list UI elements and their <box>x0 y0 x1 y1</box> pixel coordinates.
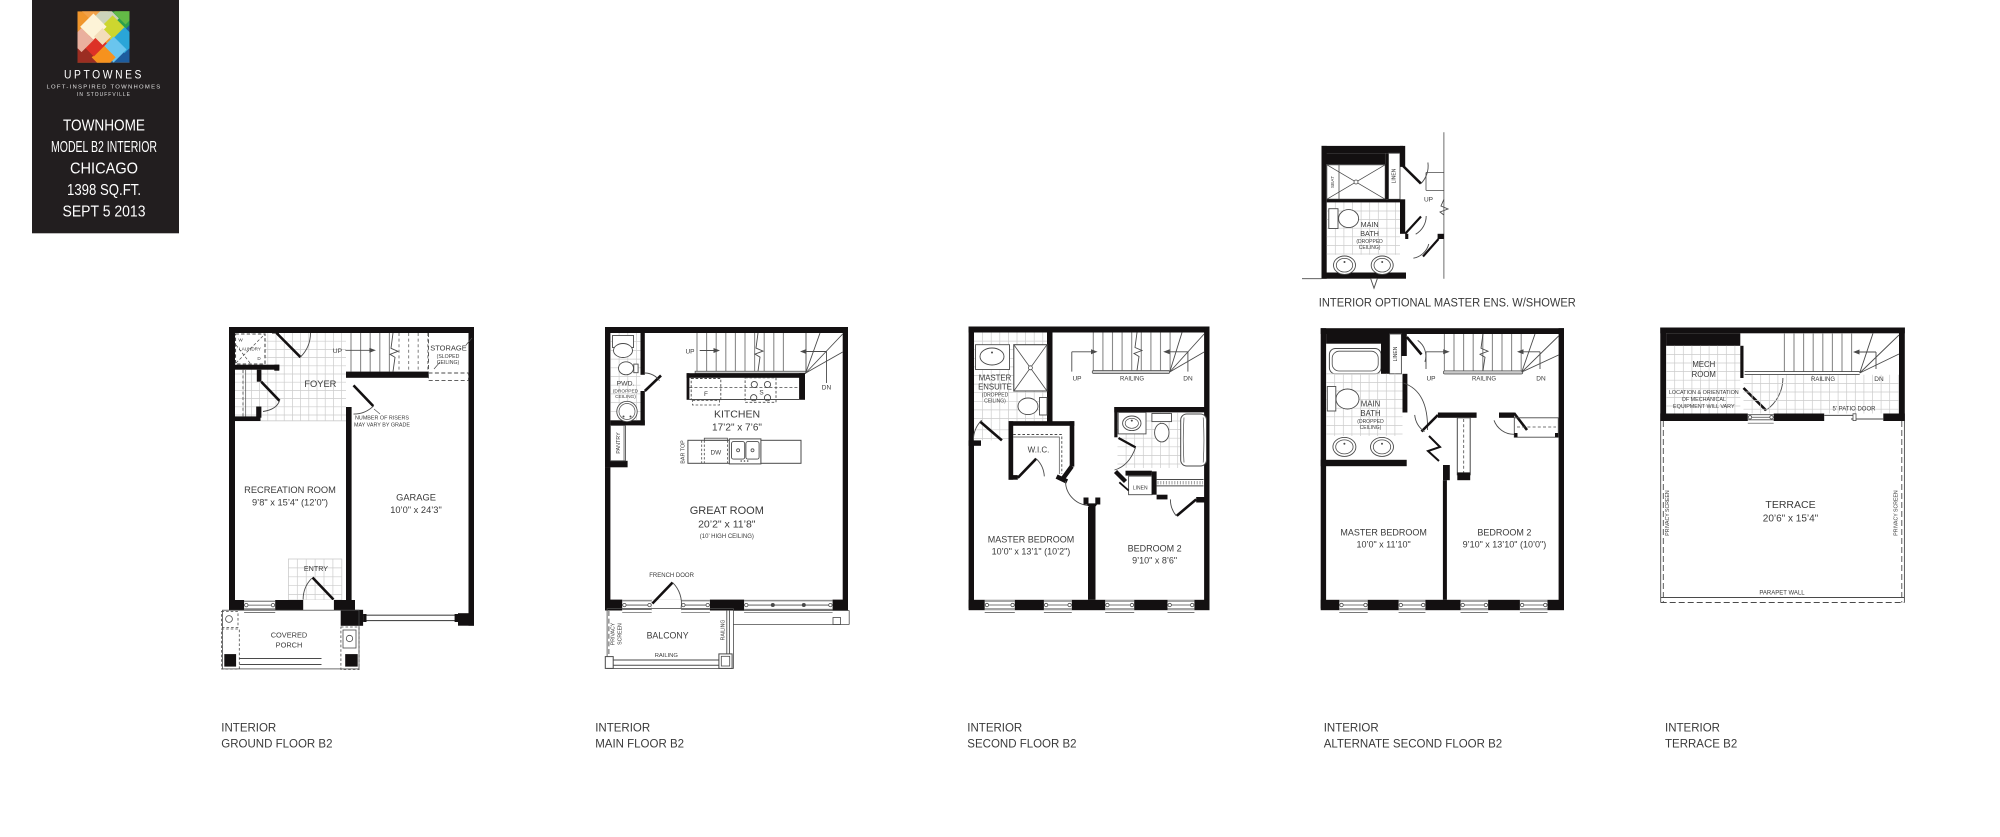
svg-text:PANTRY: PANTRY <box>616 432 622 454</box>
svg-text:GREAT ROOM: GREAT ROOM <box>690 505 764 517</box>
svg-text:PORCH: PORCH <box>276 641 303 650</box>
svg-text:20’6" x 15’4": 20’6" x 15’4" <box>1763 514 1819 525</box>
svg-text:MASTER BEDROOM: MASTER BEDROOM <box>1340 528 1427 538</box>
svg-text:INTERIOR: INTERIOR <box>1324 723 1379 735</box>
svg-text:UP: UP <box>1426 376 1435 383</box>
svg-text:MECH: MECH <box>1692 360 1715 369</box>
svg-text:W.I.C.: W.I.C. <box>1028 446 1050 455</box>
svg-text:LINEN: LINEN <box>1392 168 1398 183</box>
svg-text:UP: UP <box>685 349 694 356</box>
svg-text:UPTOWNES: UPTOWNES <box>64 68 144 82</box>
svg-text:STORAGE: STORAGE <box>430 344 467 353</box>
svg-text:PWD.: PWD. <box>617 381 635 388</box>
svg-text:5’ PATIO DOOR: 5’ PATIO DOOR <box>1833 407 1877 413</box>
svg-text:GARAGE: GARAGE <box>396 493 436 503</box>
svg-text:LINEN: LINEN <box>1133 486 1148 492</box>
svg-text:CEILING): CEILING) <box>615 394 636 400</box>
svg-text:9’10" x 8’6": 9’10" x 8’6" <box>1132 556 1177 566</box>
svg-text:NUMBER OF RISERS: NUMBER OF RISERS <box>355 416 409 422</box>
svg-text:CEILING): CEILING) <box>437 360 460 366</box>
svg-text:PRIVACY SCREEN: PRIVACY SCREEN <box>1894 490 1900 536</box>
svg-text:INTERIOR: INTERIOR <box>1665 723 1720 735</box>
svg-text:SCREEN: SCREEN <box>618 623 624 645</box>
svg-text:DW: DW <box>710 450 722 457</box>
svg-text:PRIVACY: PRIVACY <box>611 622 617 645</box>
svg-text:10’0" x 13’1" (10’2"): 10’0" x 13’1" (10’2") <box>992 547 1071 557</box>
svg-text:CEILING): CEILING) <box>984 399 1006 405</box>
svg-text:LAUNDRY: LAUNDRY <box>239 347 261 352</box>
svg-text:INTERIOR: INTERIOR <box>595 723 650 735</box>
svg-text:W: W <box>238 338 243 343</box>
svg-text:RECREATION ROOM: RECREATION ROOM <box>244 485 336 495</box>
svg-text:SEAT: SEAT <box>1330 176 1336 188</box>
svg-text:ROOM: ROOM <box>1692 370 1716 379</box>
svg-text:(10’ HIGH CEILING): (10’ HIGH CEILING) <box>700 534 754 540</box>
svg-text:BAR TOP: BAR TOP <box>681 440 687 464</box>
svg-text:DN: DN <box>1536 376 1546 383</box>
svg-text:ENTRY: ENTRY <box>304 564 328 573</box>
svg-text:S: S <box>759 390 763 397</box>
svg-text:EQUIPMENT WILL VARY: EQUIPMENT WILL VARY <box>1673 404 1735 410</box>
svg-text:10’0" x 24’3": 10’0" x 24’3" <box>390 505 442 515</box>
svg-text:TOWNHOME: TOWNHOME <box>63 117 145 134</box>
svg-text:UP: UP <box>333 348 342 355</box>
svg-text:MAIN: MAIN <box>1361 400 1381 409</box>
svg-text:BATH: BATH <box>1360 229 1379 238</box>
svg-text:PARAPET WALL: PARAPET WALL <box>1759 591 1805 597</box>
svg-text:CHICAGO: CHICAGO <box>70 160 138 177</box>
svg-text:BEDROOM 2: BEDROOM 2 <box>1477 528 1531 538</box>
svg-text:9’8" x 15’4" (12’0"): 9’8" x 15’4" (12’0") <box>252 498 328 508</box>
svg-text:SECOND FLOOR B2: SECOND FLOOR B2 <box>967 738 1076 750</box>
svg-text:CEILING): CEILING) <box>1359 245 1381 251</box>
svg-text:FRENCH DOOR: FRENCH DOOR <box>649 573 694 579</box>
svg-text:F: F <box>704 391 708 398</box>
svg-text:CEILING): CEILING) <box>1360 425 1382 431</box>
svg-text:MAIN: MAIN <box>1361 220 1379 229</box>
svg-text:1398 SQ.FT.: 1398 SQ.FT. <box>67 182 141 199</box>
svg-text:ENSUITE: ENSUITE <box>978 383 1012 392</box>
svg-text:FOYER: FOYER <box>304 379 336 389</box>
svg-text:INTERIOR OPTIONAL MASTER ENS.: INTERIOR OPTIONAL MASTER ENS. W/SHOWER <box>1319 298 1576 310</box>
svg-text:COVERED: COVERED <box>271 631 308 640</box>
svg-text:ALTERNATE SECOND FLOOR B2: ALTERNATE SECOND FLOOR B2 <box>1324 738 1503 750</box>
svg-text:LOFT-INSPIRED TOWNHOMES: LOFT-INSPIRED TOWNHOMES <box>47 85 162 91</box>
svg-text:UP: UP <box>1072 376 1081 383</box>
svg-text:MAY VARY BY GRADE: MAY VARY BY GRADE <box>354 423 410 429</box>
svg-text:MODEL B2 INTERIOR: MODEL B2 INTERIOR <box>51 139 157 156</box>
svg-text:(DROPPED: (DROPPED <box>613 388 639 394</box>
svg-text:RAILING: RAILING <box>1472 377 1496 383</box>
svg-text:MAIN FLOOR B2: MAIN FLOOR B2 <box>595 738 684 750</box>
svg-text:DN: DN <box>822 385 832 392</box>
svg-text:BALCONY: BALCONY <box>647 631 689 641</box>
svg-text:DN: DN <box>1183 376 1193 383</box>
svg-text:DN: DN <box>1874 376 1884 383</box>
svg-text:10’0" x 11’10": 10’0" x 11’10" <box>1356 540 1410 550</box>
svg-text:TERRACE B2: TERRACE B2 <box>1665 738 1737 750</box>
svg-text:RAILING: RAILING <box>1811 377 1835 383</box>
svg-text:BATH: BATH <box>1360 409 1380 418</box>
svg-text:INTERIOR: INTERIOR <box>221 723 276 735</box>
svg-text:PRIVACY SCREEN: PRIVACY SCREEN <box>1665 490 1671 536</box>
svg-text:GROUND FLOOR B2: GROUND FLOOR B2 <box>221 738 332 750</box>
svg-text:MASTER: MASTER <box>979 374 1012 383</box>
svg-text:INTERIOR: INTERIOR <box>967 723 1022 735</box>
svg-text:LOCATION & ORIENTATION: LOCATION & ORIENTATION <box>1669 390 1739 396</box>
svg-text:IN STOUFFVILLE: IN STOUFFVILLE <box>77 92 131 98</box>
svg-text:LINEN: LINEN <box>1393 346 1399 361</box>
svg-text:RAILING: RAILING <box>720 620 726 641</box>
svg-text:OF MECHANICAL: OF MECHANICAL <box>1682 397 1726 403</box>
svg-text:20’2" x 11’8": 20’2" x 11’8" <box>698 519 756 531</box>
svg-text:17’2" x 7’6": 17’2" x 7’6" <box>712 423 762 434</box>
svg-text:KITCHEN: KITCHEN <box>714 409 760 421</box>
svg-text:UP: UP <box>1424 197 1433 204</box>
svg-text:SEPT 5 2013: SEPT 5 2013 <box>63 203 146 220</box>
svg-text:MASTER BEDROOM: MASTER BEDROOM <box>988 535 1075 545</box>
svg-text:RAILING: RAILING <box>655 653 679 659</box>
svg-text:RAILING: RAILING <box>1120 377 1144 383</box>
svg-text:9’10" x 13’10" (10’0"): 9’10" x 13’10" (10’0") <box>1463 540 1547 550</box>
svg-text:TERRACE: TERRACE <box>1765 499 1815 511</box>
svg-text:BEDROOM 2: BEDROOM 2 <box>1128 544 1182 554</box>
